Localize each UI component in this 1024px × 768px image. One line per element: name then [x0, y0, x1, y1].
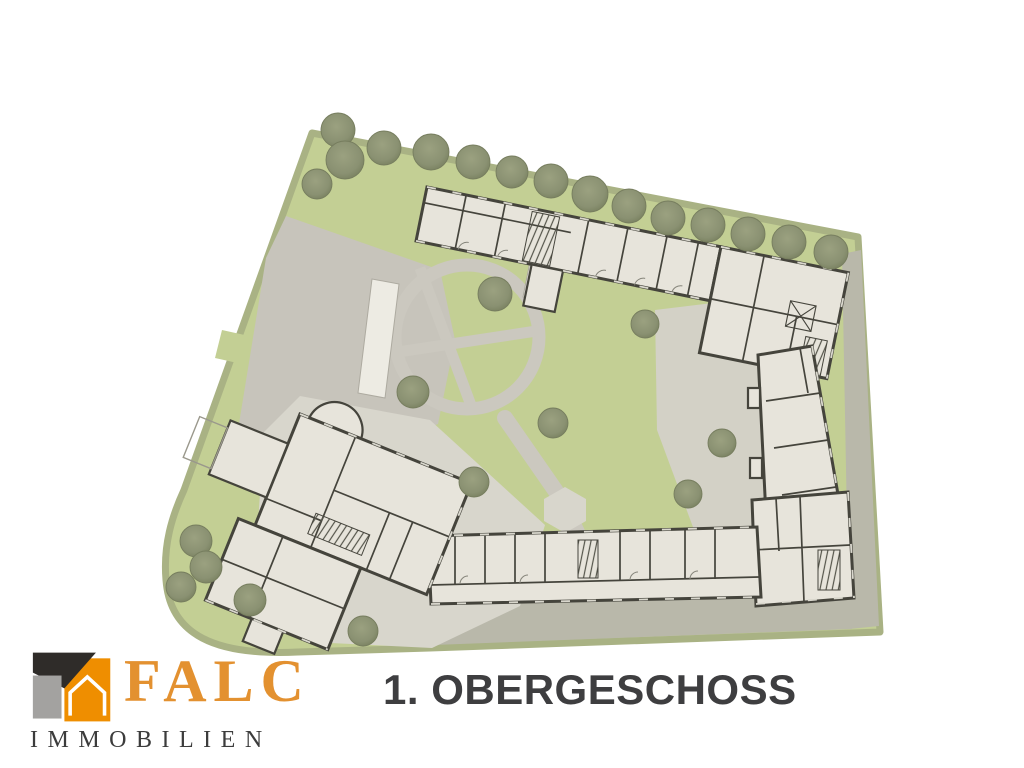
tree: [691, 208, 725, 242]
tree: [367, 131, 401, 165]
tree: [456, 145, 490, 179]
entrance-porch: [523, 264, 563, 312]
tree: [674, 480, 702, 508]
tree: [538, 408, 568, 438]
brand-subtitle: IMMOBILIEN: [30, 727, 300, 754]
building-southeast-block: [752, 492, 854, 606]
tree: [348, 616, 378, 646]
logo-gray-wall: [33, 676, 62, 719]
tree: [534, 164, 568, 198]
brand-name: FALC: [124, 645, 311, 717]
tree: [234, 584, 266, 616]
tree: [326, 141, 364, 179]
tree: [190, 551, 222, 583]
tree: [496, 156, 528, 188]
tree: [651, 201, 685, 235]
balcony-bump: [750, 458, 762, 478]
tree: [397, 376, 429, 408]
tree: [302, 169, 332, 199]
tree: [708, 429, 736, 457]
building-south-wing: [428, 527, 761, 604]
tree: [731, 217, 765, 251]
tree: [814, 235, 848, 269]
tree: [459, 467, 489, 497]
staircase: [578, 540, 598, 578]
tree: [612, 189, 646, 223]
staircase: [818, 550, 840, 590]
brand-block: FALC IMMOBILIEN: [30, 645, 300, 754]
floor-caption: 1. OBERGESCHOSS: [383, 666, 797, 714]
falc-logo-icon: [30, 649, 116, 725]
tree: [166, 572, 196, 602]
tree: [572, 176, 608, 212]
tree: [478, 277, 512, 311]
balcony-bump: [748, 388, 760, 408]
tree: [631, 310, 659, 338]
tree: [772, 225, 806, 259]
tree: [413, 134, 449, 170]
page: FALC IMMOBILIEN 1. OBERGESCHOSS: [0, 0, 1024, 768]
